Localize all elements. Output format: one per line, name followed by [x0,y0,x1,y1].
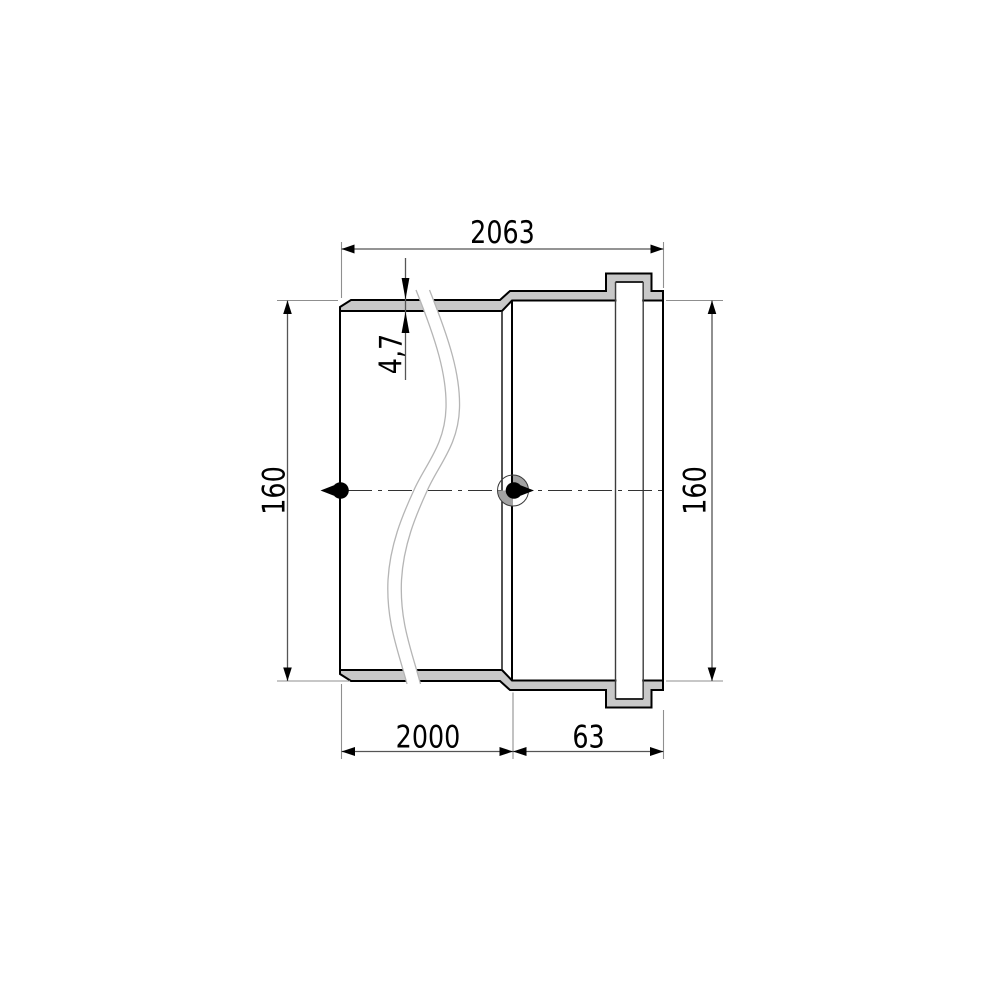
pipe-section-drawing: 2063 4,7 160 160 2000 63 [0,0,1000,1000]
arrowhead-right [651,245,664,254]
arrowhead-down [402,278,410,300]
arrowhead-down [708,668,717,682]
technical-drawing-canvas: 2063 4,7 160 160 2000 63 [0,0,1000,1000]
arrowhead-up [708,301,717,315]
marker-left [321,482,349,499]
pipe-bottom-wall [340,670,663,708]
marker-socket-mouth [498,475,535,506]
dim-label-pipe-length: 2000 [396,719,461,755]
arrowhead-up [283,301,292,315]
left-marker-arrow [321,485,335,495]
dim-label-socket-length: 63 [572,719,604,755]
dim-label-diameter-left: 160 [256,466,292,514]
dim-label-diameter-right: 160 [677,466,713,514]
arrowhead-left [342,245,355,254]
dim-label-total-length: 2063 [470,215,535,251]
arrowhead-2000-left [342,747,356,756]
dim-diameter-right: 160 [666,301,723,682]
arrowhead-63-left [513,747,527,756]
dim-wall-thickness: 4,7 [373,258,409,380]
arrowhead-2000-right [500,747,514,756]
arrowhead-up [402,312,410,334]
arrowhead-63-right [650,747,664,756]
left-marker-dot [332,482,349,499]
arrowhead-down [283,668,292,682]
dim-label-wall-thickness: 4,7 [373,334,409,374]
socket-marker-dot [506,482,523,499]
pipe-top-wall [340,274,663,312]
break-curve-right [401,290,459,684]
